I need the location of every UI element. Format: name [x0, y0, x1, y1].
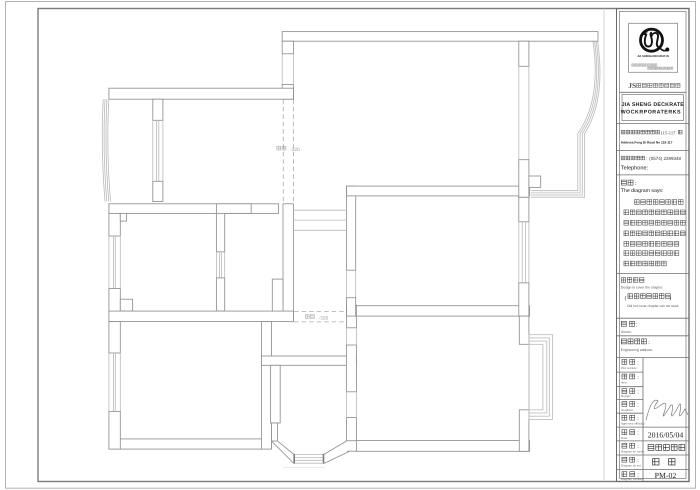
svg-text:: (0574) 2399348: : (0574) 2399348: [646, 156, 682, 161]
svg-text:Item:: Item:: [621, 380, 628, 384]
svg-text:Engineering address:: Engineering address:: [621, 348, 653, 352]
svg-text:JIA SHENG DECKRATE: JIA SHENG DECKRATE: [622, 102, 685, 108]
svg-text:2016/05/04: 2016/05/04: [648, 431, 684, 440]
svg-text:Telephone:: Telephone:: [621, 164, 649, 171]
svg-text:Date:: Date:: [621, 436, 628, 440]
svg-text:Design to cover the chapter:: Design to cover the chapter:: [621, 286, 663, 290]
svg-text:PM-02: PM-02: [655, 471, 677, 480]
svg-text:Diagram for name:: Diagram for name:: [621, 450, 645, 454]
svg-text:The diagram says:: The diagram says:: [621, 188, 664, 194]
svg-text:WOCKRPORATERKS: WOCKRPORATERKS: [621, 110, 681, 116]
svg-text:JIA SHENG DECKRAT-IN: JIA SHENG DECKRAT-IN: [637, 55, 669, 58]
svg-text:Did not cover chapter can not: Did not cover chapter can not used: [627, 304, 678, 308]
svg-text:Graphics:: Graphics:: [621, 408, 634, 412]
svg-text:Diagram de set:: Diagram de set:: [621, 464, 642, 468]
svg-text:. -320: . -320: [288, 147, 301, 153]
svg-text:JS: JS: [628, 81, 636, 90]
svg-text:Plot number:: Plot number:: [621, 366, 638, 370]
svg-text:115-117: 115-117: [661, 130, 677, 135]
svg-text:Diagram number:: Diagram number:: [621, 477, 644, 481]
svg-text:Design:: Design:: [621, 394, 631, 398]
svg-text:Address.Feng Di Road No 115-11: Address.Feng Di Road No 115-117: [621, 140, 673, 144]
svg-text:Approved officially:: Approved officially:: [621, 422, 645, 426]
svg-text:. -320: . -320: [316, 315, 329, 321]
svg-text:Owner:: Owner:: [621, 330, 632, 334]
